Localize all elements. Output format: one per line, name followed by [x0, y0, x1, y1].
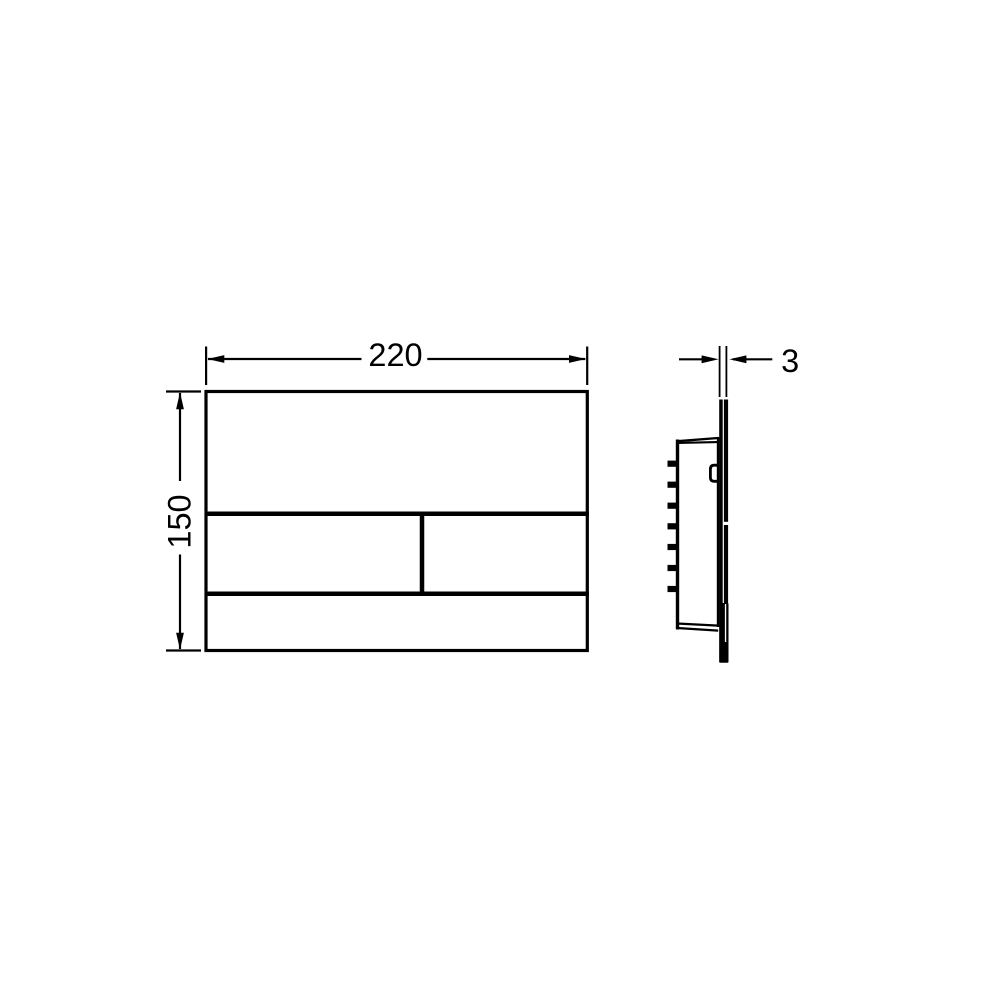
- svg-text:3: 3: [781, 343, 799, 379]
- svg-text:220: 220: [368, 337, 422, 373]
- svg-text:150: 150: [162, 494, 198, 548]
